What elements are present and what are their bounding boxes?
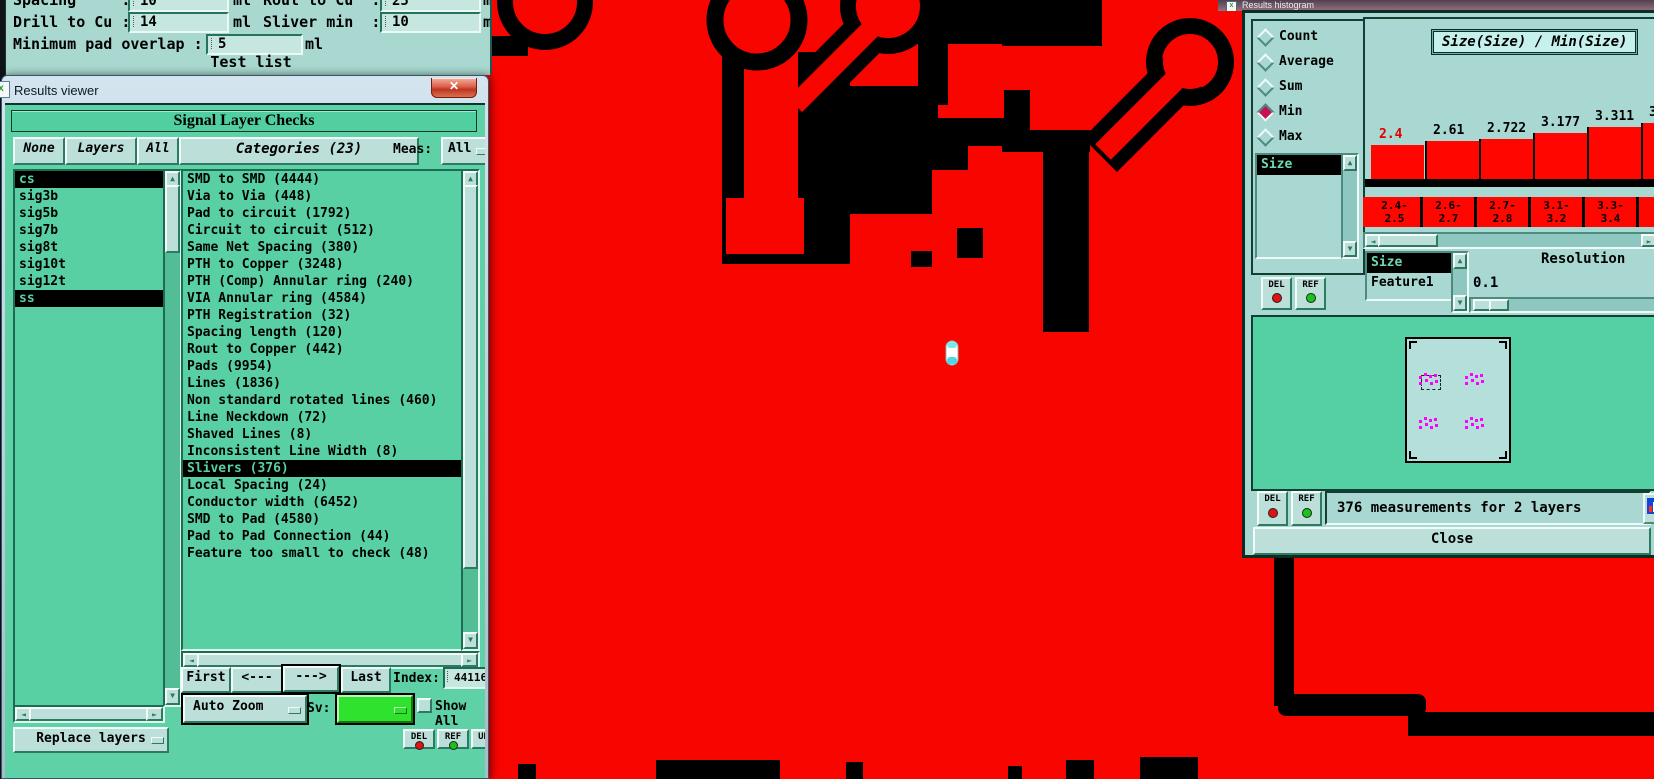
- category-item[interactable]: PTH Registration (32): [183, 307, 461, 324]
- stat-radio-list: CountAverageSumMinMax: [1253, 25, 1359, 150]
- resolution-slider-thumb2[interactable]: [1489, 299, 1509, 311]
- sliver-min-field[interactable]: 10: [380, 12, 481, 33]
- dropdown-dash-icon: [151, 737, 164, 744]
- window-icon: x: [1226, 1, 1237, 11]
- categories-vscroll-thumb[interactable]: [463, 185, 478, 569]
- spacing-label: Spacing :: [13, 0, 130, 9]
- histogram-bar: [1425, 141, 1480, 179]
- measurement-cluster-dot: [1425, 379, 1428, 382]
- stat-panel: CountAverageSumMinMax Size ▲ ▼: [1251, 19, 1365, 275]
- measurement-cluster-dot: [1430, 426, 1433, 429]
- scroll-down-icon[interactable]: ▼: [165, 688, 180, 705]
- histogram-body: CountAverageSumMinMax Size ▲ ▼ DEL REF S…: [1242, 10, 1654, 558]
- show-all-label: Show All: [435, 699, 485, 729]
- resolution-value: 0.1: [1473, 275, 1498, 291]
- scroll-down-icon[interactable]: ▼: [1343, 241, 1357, 257]
- measurement-cluster-dot: [1419, 426, 1422, 429]
- measurement-cluster-dot: [1424, 417, 1427, 420]
- measurement-cluster-dot: [1470, 373, 1473, 376]
- category-item[interactable]: Via to Via (448): [183, 188, 461, 205]
- category-item[interactable]: Lines (1836): [183, 375, 461, 392]
- measurement-cluster-dot: [1419, 376, 1422, 379]
- ref-button[interactable]: REF: [1295, 277, 1326, 310]
- green-dot-icon: [1306, 293, 1316, 303]
- measurement-cluster-dot: [1465, 382, 1468, 385]
- rout-unit: ml: [483, 0, 492, 9]
- measurement-cluster-dot: [1419, 382, 1422, 385]
- measurement-cluster-dot: [1470, 417, 1473, 420]
- layers-hscrollbar[interactable]: ◄ ►: [13, 705, 165, 723]
- category-item[interactable]: Slivers (376): [183, 460, 461, 477]
- ref-mini-button[interactable]: REF: [437, 729, 469, 749]
- layers-vscrollbar[interactable]: ▲ ▼: [163, 169, 182, 707]
- category-item[interactable]: Pads (9954): [183, 358, 461, 375]
- meas-dropdown[interactable]: All: [441, 137, 485, 165]
- next-button[interactable]: --->: [283, 666, 339, 692]
- measurement-cluster-dot: [1476, 382, 1479, 385]
- measurement-cluster-dot: [1481, 380, 1484, 383]
- radio-diamond-icon: [1256, 103, 1274, 121]
- bar-value-label: 3.311: [1595, 109, 1634, 124]
- measurement-cluster-dot: [1465, 376, 1468, 379]
- results-viewer-window: x Results viewer ✕ Signal Layer Checks N…: [1, 75, 489, 779]
- radio-diamond-icon: [1256, 53, 1274, 71]
- corner-tick-icon: [1499, 341, 1507, 349]
- highlighted-sliver-marker[interactable]: [946, 341, 958, 365]
- measurement-cluster-dot: [1471, 423, 1474, 426]
- board-preview-panel[interactable]: [1251, 315, 1654, 491]
- resolution-slider[interactable]: [1469, 297, 1654, 313]
- bar-value-label: 2.4: [1379, 127, 1402, 142]
- status-box: 376 measurements for 2 layers: [1325, 491, 1651, 525]
- screen: Spacing : 10 ml Rout to Cu : 25 ml Drill…: [0, 0, 1654, 779]
- category-item[interactable]: Conductor width (6452): [183, 494, 461, 511]
- bin-range-label: 2.7-2.8: [1477, 197, 1531, 227]
- category-item[interactable]: Rout to Copper (442): [183, 341, 461, 358]
- categories-vscrollbar[interactable]: ▲ ▼: [461, 169, 480, 651]
- histogram-title: Results histogram: [1242, 0, 1314, 10]
- viewer-title: x Results viewer: [14, 83, 99, 98]
- category-item[interactable]: Pad to circuit (1792): [183, 205, 461, 222]
- category-item[interactable]: Inconsistent Line Width (8): [183, 443, 461, 460]
- bar-value-label: 2.722: [1487, 121, 1526, 136]
- measurement-cluster-dot: [1429, 419, 1432, 422]
- bar-value-label: 2.61: [1433, 123, 1464, 138]
- attribute-item-Feature1[interactable]: Feature1: [1367, 273, 1451, 293]
- stat-option-average[interactable]: Average: [1253, 50, 1359, 75]
- layer-item-sig3b[interactable]: sig3b: [15, 188, 163, 205]
- close-button[interactable]: Close: [1253, 527, 1651, 555]
- measurement-cluster-dot: [1434, 374, 1437, 377]
- measurement-cluster-dot: [1480, 374, 1483, 377]
- sv-color-dropdown[interactable]: [337, 695, 413, 723]
- stat-option-sum[interactable]: Sum: [1253, 75, 1359, 100]
- scroll-down-icon[interactable]: ▼: [1453, 295, 1467, 311]
- measurement-cluster-dot: [1475, 375, 1478, 378]
- stat-option-max[interactable]: Max: [1253, 125, 1359, 150]
- category-item[interactable]: Line Neckdown (72): [183, 409, 461, 426]
- scroll-up-icon[interactable]: ▲: [1343, 155, 1357, 171]
- category-item[interactable]: SMD to SMD (4444): [183, 171, 461, 188]
- prev-button[interactable]: <---: [231, 667, 283, 693]
- min-pad-overlap-field[interactable]: 5: [206, 34, 303, 55]
- dropdown-dash-icon: [288, 707, 301, 714]
- last-button[interactable]: Last: [341, 667, 391, 693]
- measurement-cluster-dot: [1475, 419, 1478, 422]
- histogram-bar: [1371, 145, 1424, 179]
- radio-diamond-icon: [1256, 28, 1274, 46]
- histogram-bars: 2.42.612.7223.1773.3113.: [1365, 19, 1654, 179]
- red-dot-icon: [1268, 508, 1278, 518]
- drill-unit: ml: [233, 13, 251, 31]
- layer-item-sig12t[interactable]: sig12t: [15, 273, 163, 290]
- ref-button[interactable]: REF: [1291, 491, 1322, 526]
- series-list[interactable]: Size: [1255, 153, 1343, 259]
- category-item[interactable]: Feature too small to check (48): [183, 545, 461, 562]
- layers-button[interactable]: Layers: [65, 137, 137, 165]
- close-button[interactable]: ✕: [431, 78, 477, 98]
- del-button[interactable]: DEL: [1257, 491, 1288, 526]
- series-item-Size[interactable]: Size: [1257, 155, 1341, 175]
- overlap-unit: ml: [305, 35, 323, 53]
- bin-range-label: 3.1-3.2: [1531, 197, 1585, 227]
- corner-tick-icon: [1409, 341, 1417, 349]
- attribute-vscrollbar[interactable]: ▲ ▼: [1451, 251, 1469, 313]
- viewer-titlebar[interactable]: x Results viewer ✕: [4, 78, 486, 102]
- rout-to-cu-field[interactable]: 25: [380, 0, 481, 12]
- scroll-right-icon[interactable]: ►: [1641, 234, 1654, 247]
- checks-parameter-dialog: Spacing : 10 ml Rout to Cu : 25 ml Drill…: [6, 0, 492, 75]
- radio-diamond-icon: [1256, 78, 1274, 96]
- stat-option-label: Average: [1279, 54, 1334, 69]
- scroll-down-icon[interactable]: ▼: [463, 632, 478, 649]
- first-button[interactable]: First: [181, 667, 231, 693]
- category-item[interactable]: Circuit to circuit (512): [183, 222, 461, 239]
- green-dot-icon: [1302, 508, 1312, 518]
- board-outline: [1405, 337, 1511, 463]
- measurement-cluster-dot: [1471, 379, 1474, 382]
- categories-header-button[interactable]: Categories (23): [179, 137, 419, 165]
- next-button-focus-ring: --->: [281, 664, 341, 694]
- layers-list[interactable]: cssig3bsig5bsig7bsig8tsig10tsig12tss: [13, 169, 165, 707]
- auto-zoom-frame: Auto Zoom: [181, 693, 309, 725]
- measurement-cluster-dot: [1480, 418, 1483, 421]
- sv-label: Sv:: [307, 701, 330, 716]
- layer-item-sig5b[interactable]: sig5b: [15, 205, 163, 222]
- red-dot-icon: [415, 741, 424, 750]
- chart-hscrollbar[interactable]: ◄ ►: [1363, 232, 1654, 249]
- corner-tick-icon: [1409, 451, 1417, 459]
- layer-item-ss[interactable]: ss: [15, 290, 163, 307]
- measurement-cluster-dot: [1429, 375, 1432, 378]
- scroll-up-icon[interactable]: ▲: [1453, 253, 1467, 269]
- del-button[interactable]: DEL: [1261, 277, 1292, 310]
- histogram-icon-button[interactable]: [1643, 493, 1654, 524]
- category-item[interactable]: PTH (Comp) Annular ring (240): [183, 273, 461, 290]
- stat-option-label: Count: [1279, 29, 1318, 44]
- histogram-bar: [1641, 123, 1654, 179]
- sv-frame: [335, 693, 415, 725]
- histogram-bar: [1533, 133, 1588, 179]
- category-item[interactable]: Non standard rotated lines (460): [183, 392, 461, 409]
- meas-label: Meas:: [393, 142, 432, 157]
- measurement-cluster-dot: [1434, 418, 1437, 421]
- measurement-cluster-dot: [1425, 423, 1428, 426]
- layer-item-sig7b[interactable]: sig7b: [15, 222, 163, 239]
- viewer-body: Signal Layer Checks None Layers All Cate…: [5, 103, 485, 778]
- resolution-label: Resolution: [1541, 251, 1625, 267]
- measurement-cluster-dot: [1424, 373, 1427, 376]
- layers-hscroll-thumb[interactable]: [29, 707, 149, 721]
- stat-option-label: Min: [1279, 104, 1302, 119]
- corner-tick-icon: [1499, 451, 1507, 459]
- stat-option-count[interactable]: Count: [1253, 25, 1359, 50]
- category-item[interactable]: Same Net Spacing (380): [183, 239, 461, 256]
- categories-list[interactable]: SMD to SMD (4444)Via to Via (448)Pad to …: [181, 169, 463, 651]
- attribute-list[interactable]: SizeFeature1: [1365, 251, 1453, 301]
- sliver-unit: ml: [483, 13, 492, 31]
- stat-option-label: Max: [1279, 129, 1302, 144]
- category-item[interactable]: Spacing length (120): [183, 324, 461, 341]
- mini-histogram-icon: [1647, 498, 1654, 514]
- measurement-cluster-dot: [1430, 382, 1433, 385]
- histogram-bar: [1587, 127, 1642, 179]
- measurement-cluster-dot: [1435, 424, 1438, 427]
- show-all-checkbox[interactable]: [417, 698, 432, 713]
- series-vscrollbar[interactable]: ▲ ▼: [1341, 153, 1359, 259]
- sliver-min-label: Sliver min :: [263, 13, 380, 31]
- scroll-right-icon[interactable]: ►: [461, 653, 478, 667]
- dropdown-dash-icon: [476, 148, 485, 155]
- layer-item-sig8t[interactable]: sig8t: [15, 239, 163, 256]
- undo-mini-button[interactable]: UNDO: [471, 729, 485, 749]
- category-item[interactable]: SMD to Pad (4580): [183, 511, 461, 528]
- scroll-right-icon[interactable]: ►: [146, 707, 163, 721]
- layers-vscroll-thumb[interactable]: [165, 185, 180, 253]
- green-dot-icon: [449, 741, 458, 750]
- category-item[interactable]: VIA Annular ring (4584): [183, 290, 461, 307]
- del-mini-button[interactable]: DEL: [403, 729, 435, 749]
- layer-item-sig10t[interactable]: sig10t: [15, 256, 163, 273]
- rout-to-cu-label: Rout to Cu :: [263, 0, 380, 9]
- spacing-unit: ml: [233, 0, 251, 9]
- index-label: Index:: [393, 671, 440, 686]
- window-icon: x: [0, 81, 10, 98]
- bar-value-label: 3.177: [1541, 115, 1580, 130]
- bin-range-label: 3.3-3.4: [1585, 197, 1639, 227]
- chart-axis: [1365, 179, 1654, 187]
- results-histogram-window: x Results histogram CountAverageSumMinMa…: [1218, 0, 1654, 560]
- measurement-cluster-dot: [1465, 420, 1468, 423]
- spacing-field[interactable]: 10: [128, 0, 229, 12]
- histogram-bar: [1479, 139, 1534, 179]
- bin-label-strip: 2.4-2.52.6-2.72.7-2.83.1-3.23.3-3.43.: [1363, 197, 1654, 227]
- none-button[interactable]: None: [13, 137, 65, 165]
- min-pad-overlap-label: Minimum pad overlap :: [13, 35, 203, 53]
- category-item[interactable]: Pad to Pad Connection (44): [183, 528, 461, 545]
- histogram-chart-panel[interactable]: Size(Size) / Min(Size) 2.42.612.7223.177…: [1363, 17, 1654, 199]
- bin-range-label: 2.6-2.7: [1423, 197, 1477, 227]
- stat-option-label: Sum: [1279, 79, 1302, 94]
- category-item[interactable]: Shaved Lines (8): [183, 426, 461, 443]
- all-button[interactable]: All: [137, 137, 179, 165]
- bin-range-label: 2.4-2.5: [1369, 197, 1423, 227]
- measurement-cluster-dot: [1476, 426, 1479, 429]
- signal-layer-checks-header: Signal Layer Checks: [11, 110, 477, 132]
- test-list-label: Test list: [166, 53, 336, 71]
- bin-range-label: 3.: [1639, 197, 1654, 227]
- auto-zoom-dropdown[interactable]: Auto Zoom: [183, 695, 307, 723]
- stat-option-min[interactable]: Min: [1253, 100, 1359, 125]
- measurement-cluster-dot: [1419, 420, 1422, 423]
- measurement-cluster-dot: [1465, 426, 1468, 429]
- category-item[interactable]: PTH to Copper (3248): [183, 256, 461, 273]
- radio-diamond-icon: [1256, 128, 1274, 146]
- red-dot-icon: [1272, 293, 1282, 303]
- dropdown-dash-icon: [394, 707, 407, 714]
- drill-to-cu-field[interactable]: 14: [128, 12, 229, 33]
- attribute-item-Size[interactable]: Size: [1367, 253, 1451, 273]
- replace-layers-dropdown[interactable]: Replace layers: [13, 727, 169, 753]
- drill-to-cu-label: Drill to Cu :: [13, 13, 130, 31]
- measurement-cluster-dot: [1435, 380, 1438, 383]
- category-item[interactable]: Local Spacing (24): [183, 477, 461, 494]
- layer-item-cs[interactable]: cs: [15, 171, 163, 188]
- measurement-cluster-dot: [1481, 424, 1484, 427]
- bar-value-label: 3.: [1649, 105, 1654, 120]
- index-field[interactable]: 44116: [443, 667, 485, 689]
- chart-hscroll-thumb[interactable]: [1378, 234, 1438, 247]
